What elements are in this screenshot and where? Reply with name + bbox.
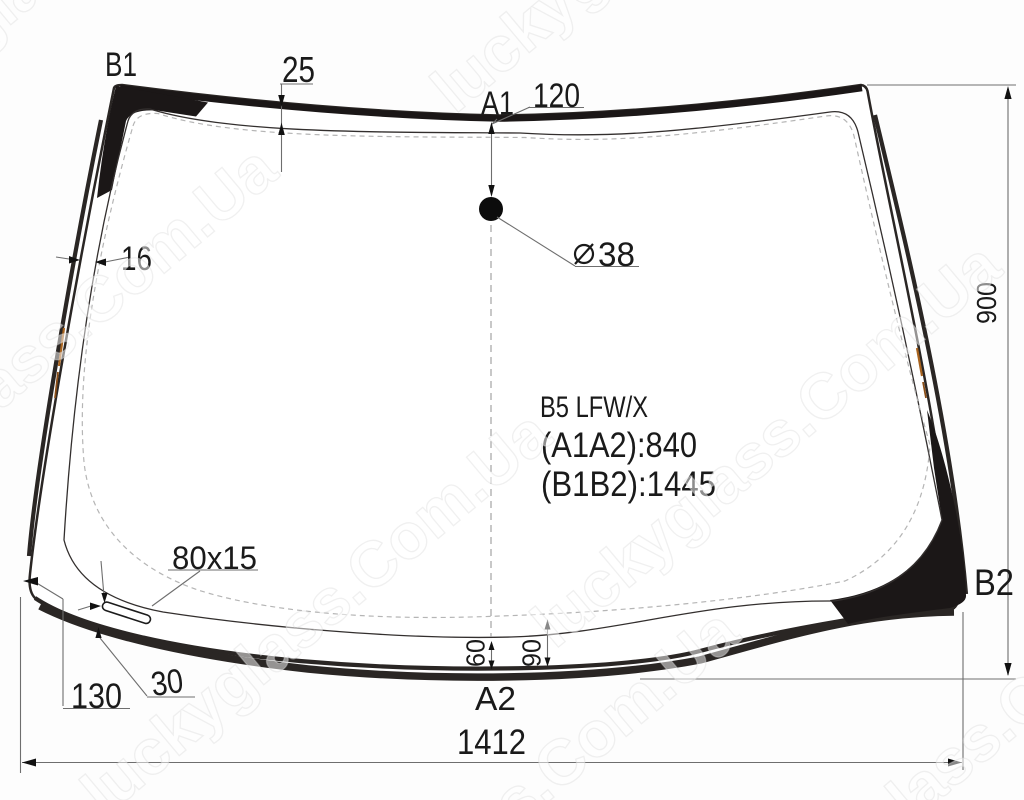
svg-text:120: 120 bbox=[533, 77, 580, 115]
svg-text:130: 130 bbox=[71, 677, 122, 716]
svg-text:60: 60 bbox=[461, 639, 491, 667]
svg-text:B2: B2 bbox=[974, 562, 1014, 603]
svg-text:90: 90 bbox=[517, 639, 547, 667]
svg-text:B5 LFW/X: B5 LFW/X bbox=[540, 391, 648, 424]
svg-text:38: 38 bbox=[598, 236, 635, 274]
svg-text:B1: B1 bbox=[105, 46, 137, 84]
svg-text:A2: A2 bbox=[475, 680, 516, 717]
svg-text:(A1A2):840: (A1A2):840 bbox=[541, 426, 697, 465]
svg-text:80x15: 80x15 bbox=[172, 540, 257, 576]
svg-text:25: 25 bbox=[282, 49, 315, 90]
